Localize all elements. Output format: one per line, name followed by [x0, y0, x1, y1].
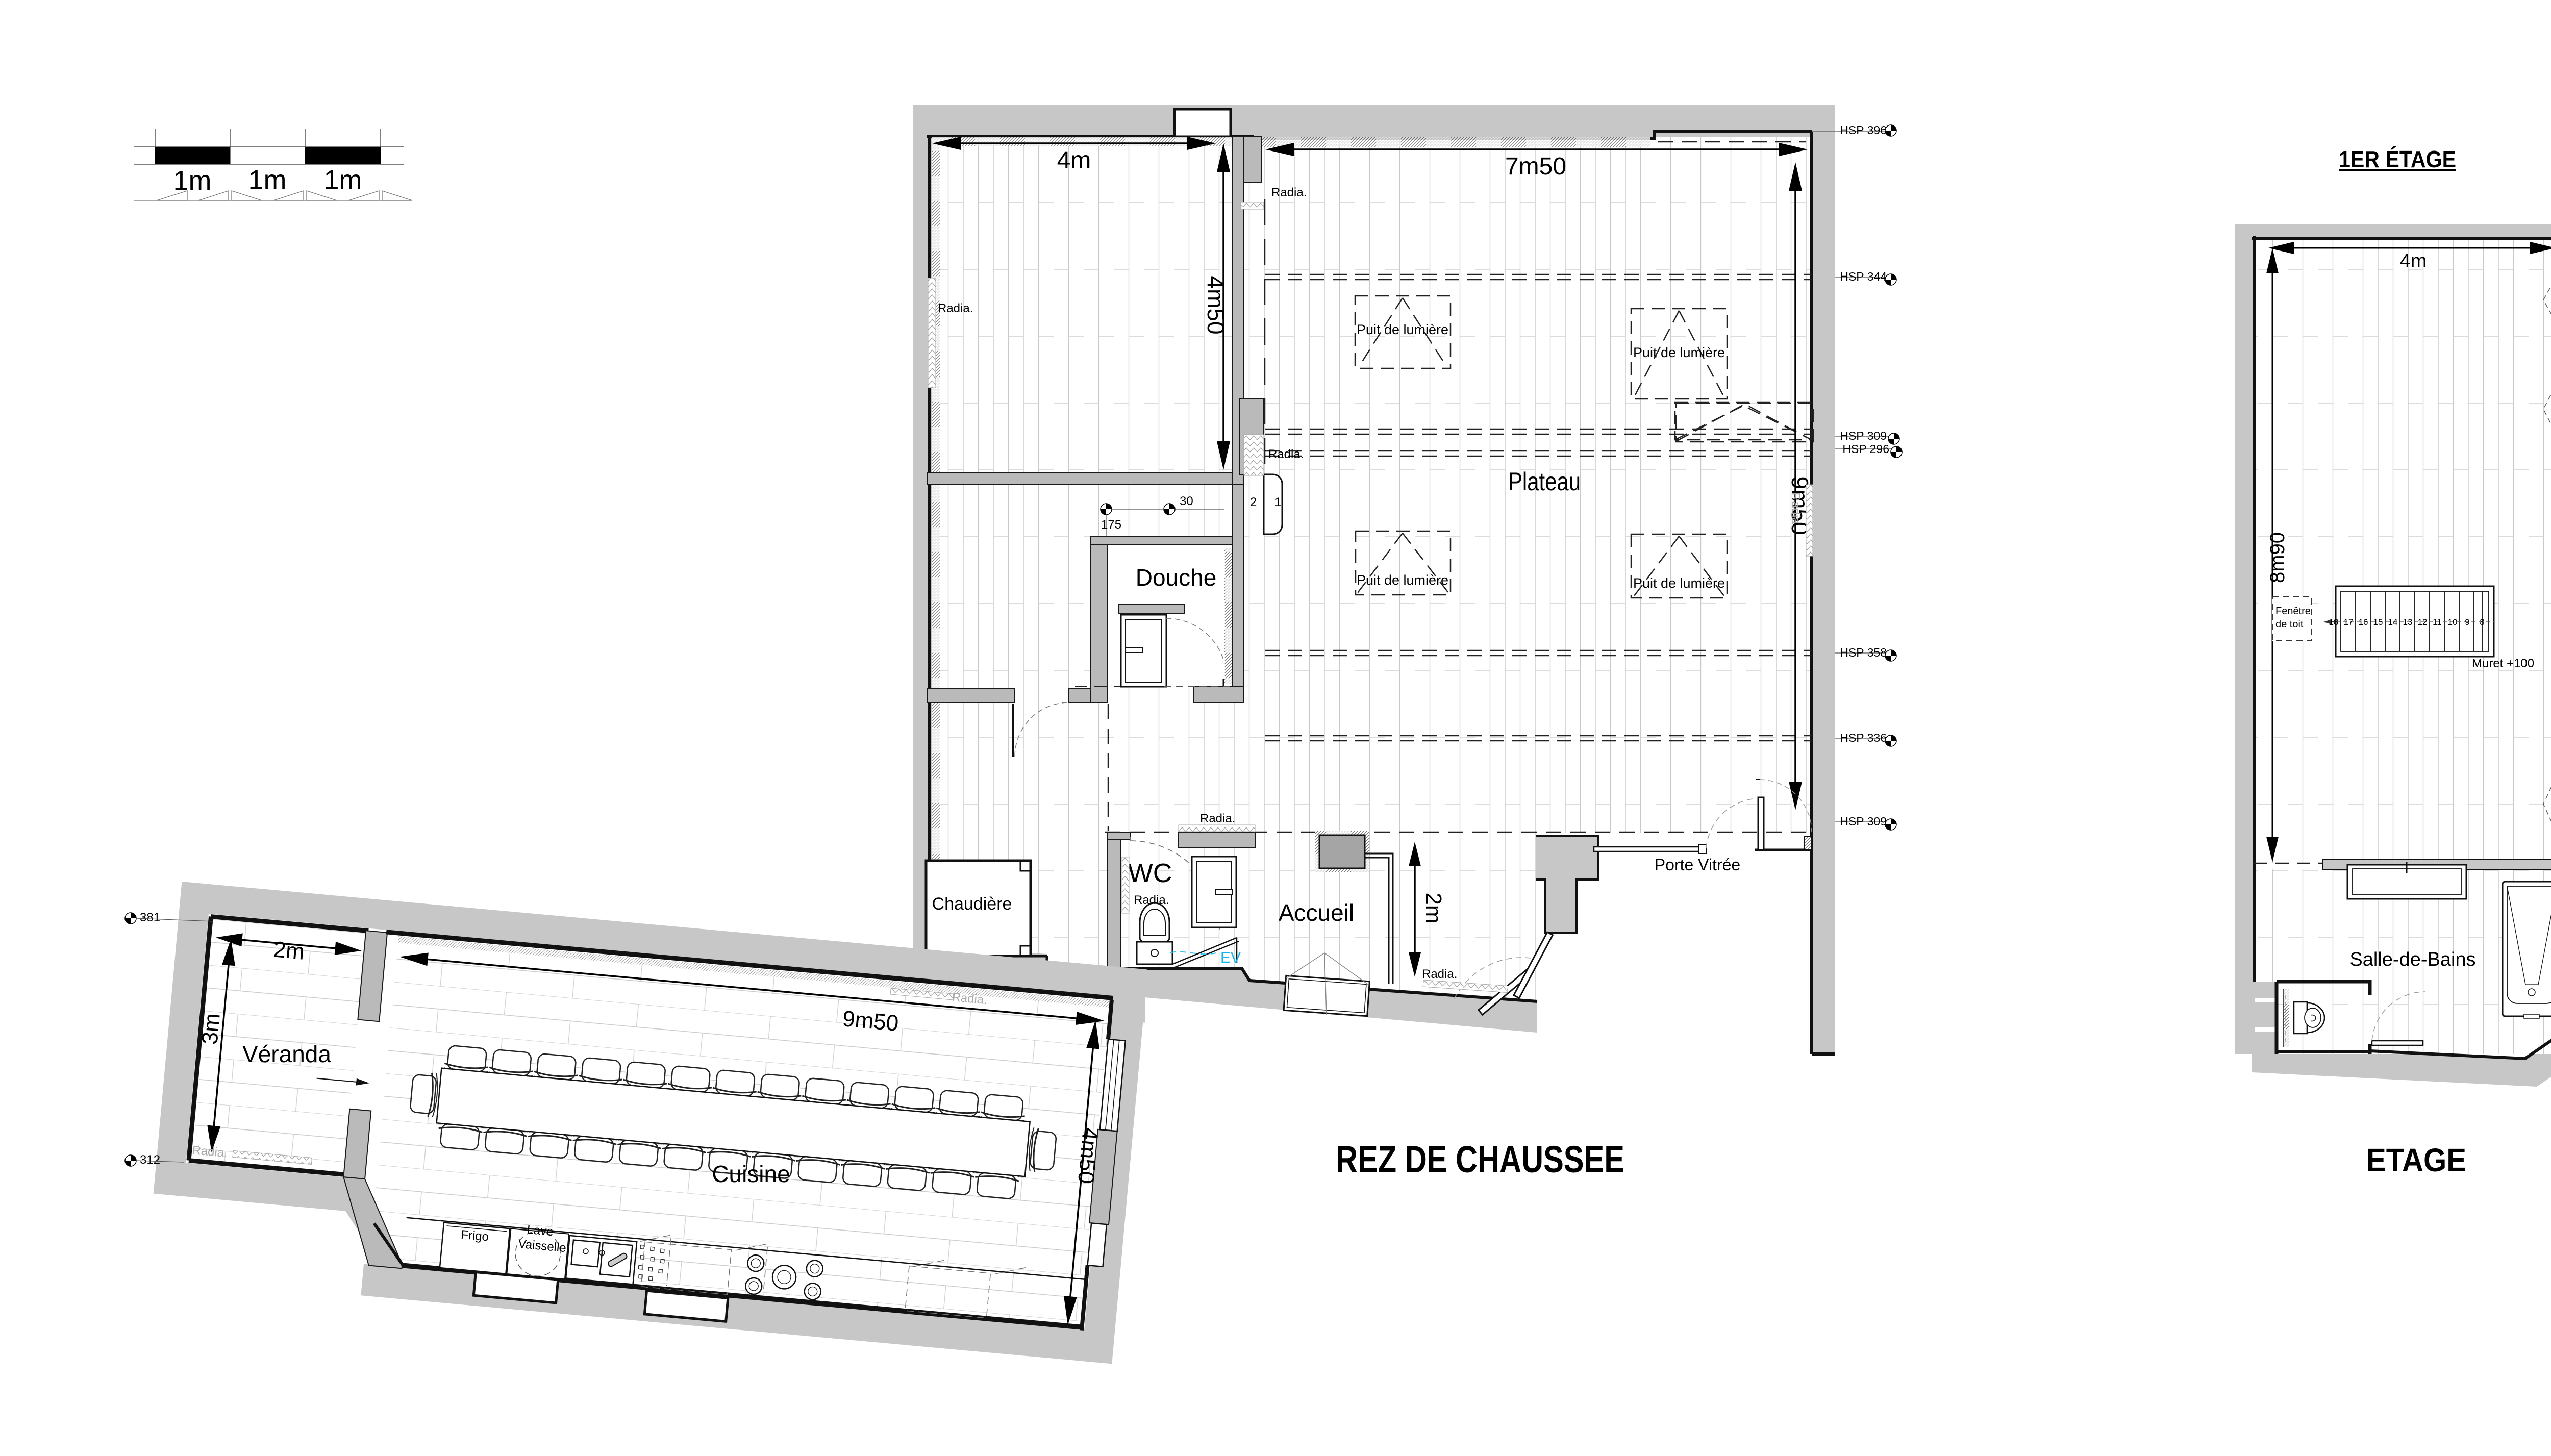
- svg-text:13: 13: [2403, 617, 2413, 627]
- svg-text:Radia.: Radia.: [1271, 186, 1307, 199]
- svg-text:Radia.: Radia.: [1789, 492, 1803, 528]
- svg-text:2m: 2m: [1421, 892, 1446, 923]
- svg-text:1m: 1m: [323, 165, 362, 195]
- svg-text:Puit de lumière: Puit de lumière: [1357, 322, 1448, 337]
- svg-text:Radia.: Radia.: [938, 302, 973, 315]
- svg-text:9: 9: [2465, 617, 2469, 627]
- svg-text:Radia.: Radia.: [1134, 893, 1169, 907]
- svg-text:Chaudière: Chaudière: [932, 894, 1012, 914]
- svg-text:HSP 309: HSP 309: [1840, 429, 1887, 442]
- svg-text:Muret +100: Muret +100: [2472, 657, 2534, 670]
- svg-text:2m: 2m: [272, 937, 306, 964]
- svg-text:HSP 344: HSP 344: [1840, 270, 1887, 283]
- svg-text:HSP 396: HSP 396: [1840, 123, 1887, 137]
- svg-text:2: 2: [1250, 495, 1257, 509]
- svg-text:381: 381: [140, 911, 160, 924]
- svg-text:16: 16: [2359, 617, 2368, 627]
- svg-text:Radia.: Radia.: [1268, 447, 1304, 461]
- svg-text:ETAGE: ETAGE: [2366, 1142, 2466, 1178]
- svg-text:4m50: 4m50: [1073, 1126, 1103, 1185]
- svg-text:REZ DE CHAUSSEE: REZ DE CHAUSSEE: [1336, 1138, 1624, 1181]
- svg-text:4m: 4m: [2400, 250, 2427, 272]
- svg-text:8: 8: [2480, 617, 2484, 627]
- svg-text:HSP 358: HSP 358: [1840, 646, 1887, 659]
- svg-text:11: 11: [2433, 617, 2442, 627]
- svg-text:Porte Vitrée: Porte Vitrée: [1655, 856, 1740, 874]
- svg-text:HSP 309: HSP 309: [1840, 815, 1887, 828]
- svg-text:1m: 1m: [248, 165, 286, 195]
- svg-text:HSP 296: HSP 296: [1842, 442, 1889, 456]
- svg-text:1ER ÉTAGE: 1ER ÉTAGE: [2339, 146, 2456, 172]
- svg-text:Puit de lumière: Puit de lumière: [1633, 345, 1725, 360]
- svg-text:Douche: Douche: [1136, 564, 1217, 591]
- svg-text:1m: 1m: [173, 165, 211, 196]
- svg-text:8m90: 8m90: [2266, 532, 2289, 583]
- svg-text:14: 14: [2388, 617, 2398, 627]
- svg-text:Véranda: Véranda: [242, 1041, 331, 1067]
- svg-text:Radia.: Radia.: [1422, 967, 1457, 981]
- svg-text:Cuisine: Cuisine: [712, 1161, 790, 1187]
- svg-text:12: 12: [2418, 617, 2428, 627]
- svg-text:HSP 336: HSP 336: [1840, 731, 1887, 744]
- svg-text:Lave: Lave: [527, 1223, 554, 1239]
- svg-text:3m: 3m: [197, 1012, 224, 1045]
- svg-text:9m50: 9m50: [841, 1006, 899, 1036]
- svg-text:Radia.: Radia.: [1200, 812, 1235, 825]
- svg-text:Salle-de-Bains: Salle-de-Bains: [2349, 949, 2475, 970]
- svg-text:WC: WC: [1128, 859, 1172, 888]
- svg-text:de toit: de toit: [2275, 619, 2304, 630]
- svg-text:18: 18: [2329, 617, 2339, 627]
- svg-text:4m: 4m: [1057, 147, 1091, 174]
- svg-text:7m50: 7m50: [1505, 153, 1566, 180]
- svg-text:Puit de lumière: Puit de lumière: [1357, 572, 1448, 588]
- svg-text:Plateau: Plateau: [1508, 467, 1581, 496]
- svg-text:Puit de lumière: Puit de lumière: [1633, 575, 1725, 591]
- svg-text:312: 312: [140, 1153, 160, 1167]
- svg-text:4m50: 4m50: [1203, 275, 1229, 334]
- svg-text:175: 175: [1101, 518, 1121, 532]
- svg-text:EV: EV: [1220, 949, 1241, 966]
- svg-text:10: 10: [2448, 617, 2458, 627]
- svg-text:Frigo: Frigo: [460, 1228, 489, 1244]
- svg-text:1: 1: [1274, 495, 1281, 509]
- svg-text:15: 15: [2373, 617, 2383, 627]
- svg-text:17: 17: [2344, 617, 2354, 627]
- svg-text:Accueil: Accueil: [1279, 899, 1354, 926]
- svg-text:30: 30: [1180, 494, 1193, 508]
- svg-text:Fenêtre: Fenêtre: [2275, 606, 2311, 617]
